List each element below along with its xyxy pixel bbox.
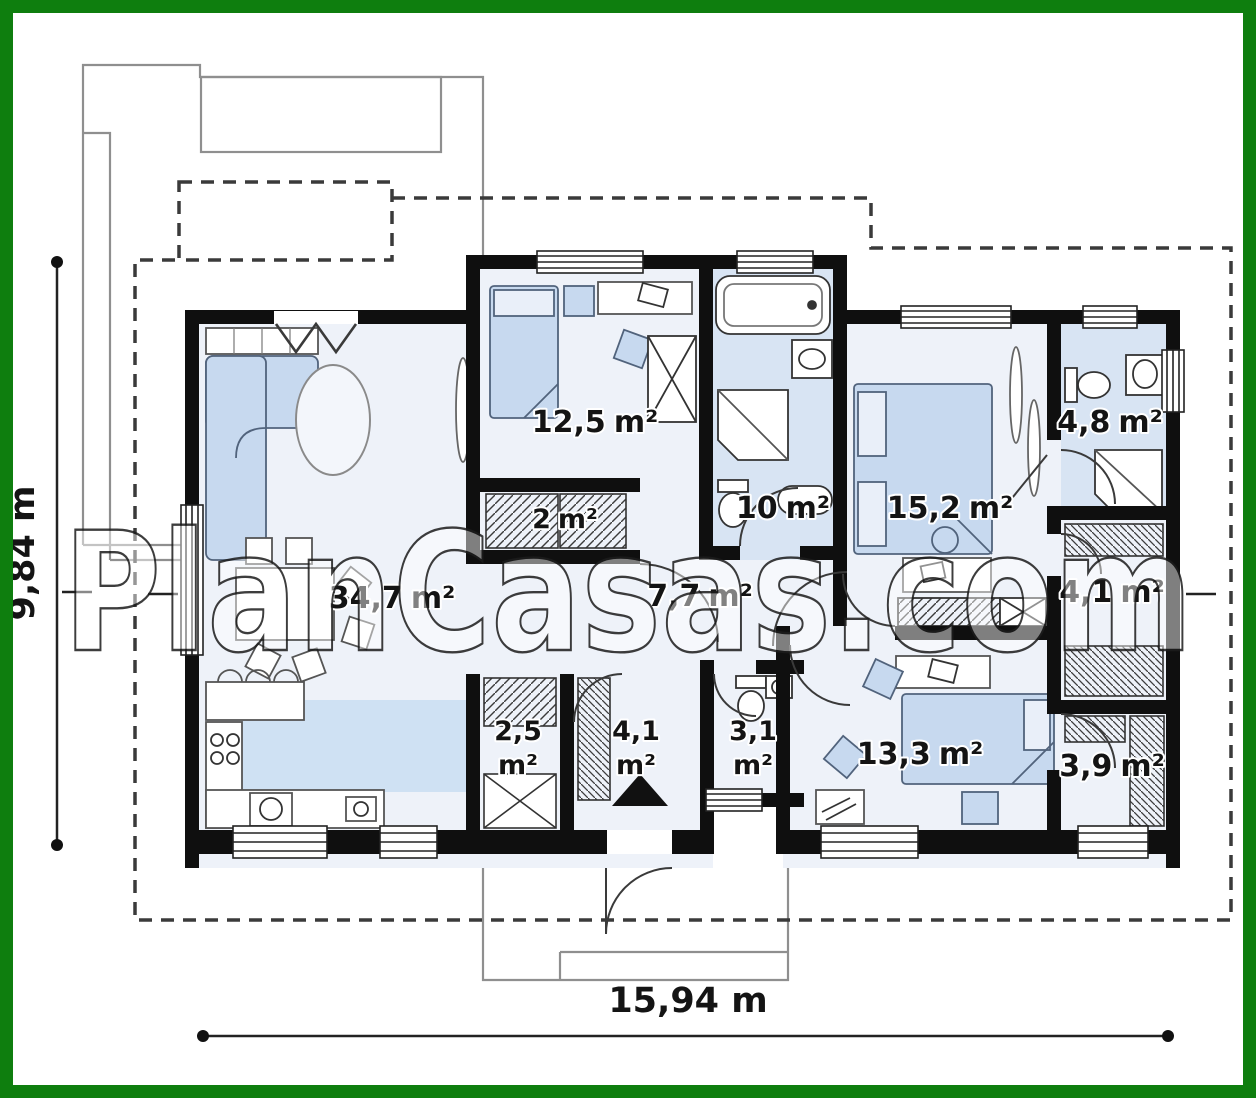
window	[901, 306, 1011, 328]
height-dimension-label: 9,84 m	[3, 485, 43, 620]
floor-plan-svg: 34,7m² 12,5m² 2m² 10m² 15,2m² 4,8m² 7,7m…	[0, 0, 1256, 1098]
window	[737, 251, 813, 273]
window	[1078, 826, 1148, 858]
porch-outline	[483, 868, 788, 980]
window	[537, 251, 643, 273]
room-label-wardrobe-2: 3,9m²	[1059, 749, 1165, 784]
window	[1162, 350, 1184, 412]
window	[1083, 306, 1137, 328]
sink	[346, 797, 376, 821]
window	[821, 826, 918, 858]
toilet	[1078, 372, 1110, 398]
floor-plan-page: 34,7m² 12,5m² 2m² 10m² 15,2m² 4,8m² 7,7m…	[0, 0, 1256, 1098]
entry-door-arc	[606, 868, 672, 934]
watermark-text: PlanCasas.com	[63, 497, 1193, 689]
rug	[296, 365, 370, 475]
window	[380, 826, 437, 858]
window	[706, 789, 762, 811]
window	[233, 826, 327, 858]
room-label-bedroom-1: 12,5m²	[532, 405, 658, 440]
room-label-bedroom-2: 13,3m²	[857, 737, 983, 772]
width-dimension-label: 15,94 m	[608, 981, 767, 1021]
room-label-ensuite: 4,8m²	[1057, 405, 1163, 440]
